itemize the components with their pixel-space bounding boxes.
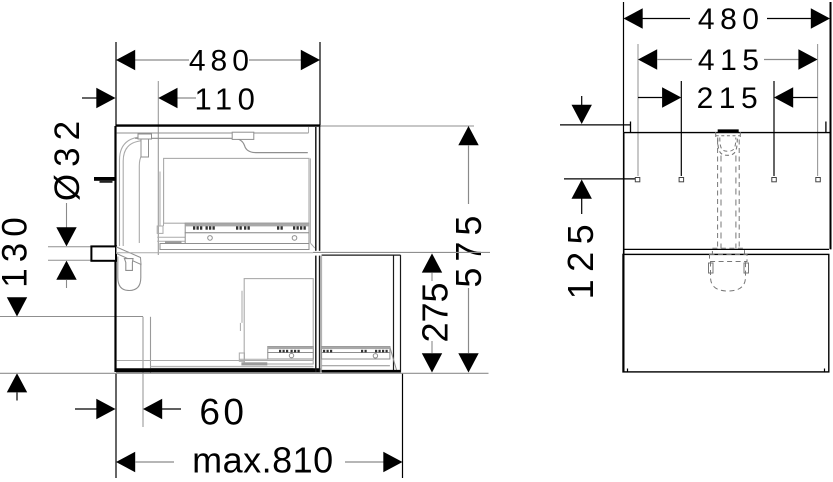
svg-text:275: 275 — [415, 282, 456, 342]
svg-text:480: 480 — [189, 45, 254, 78]
svg-text:110: 110 — [194, 82, 260, 117]
svg-text:max.810: max.810 — [192, 439, 334, 480]
svg-text:130: 130 — [0, 211, 35, 287]
svg-text:215: 215 — [697, 82, 764, 115]
svg-text:575: 575 — [448, 210, 489, 288]
svg-text:60: 60 — [199, 392, 247, 433]
svg-text:Ø32: Ø32 — [48, 114, 87, 201]
svg-text:415: 415 — [698, 44, 765, 77]
svg-text:125: 125 — [560, 217, 601, 300]
svg-text:480: 480 — [698, 3, 765, 36]
